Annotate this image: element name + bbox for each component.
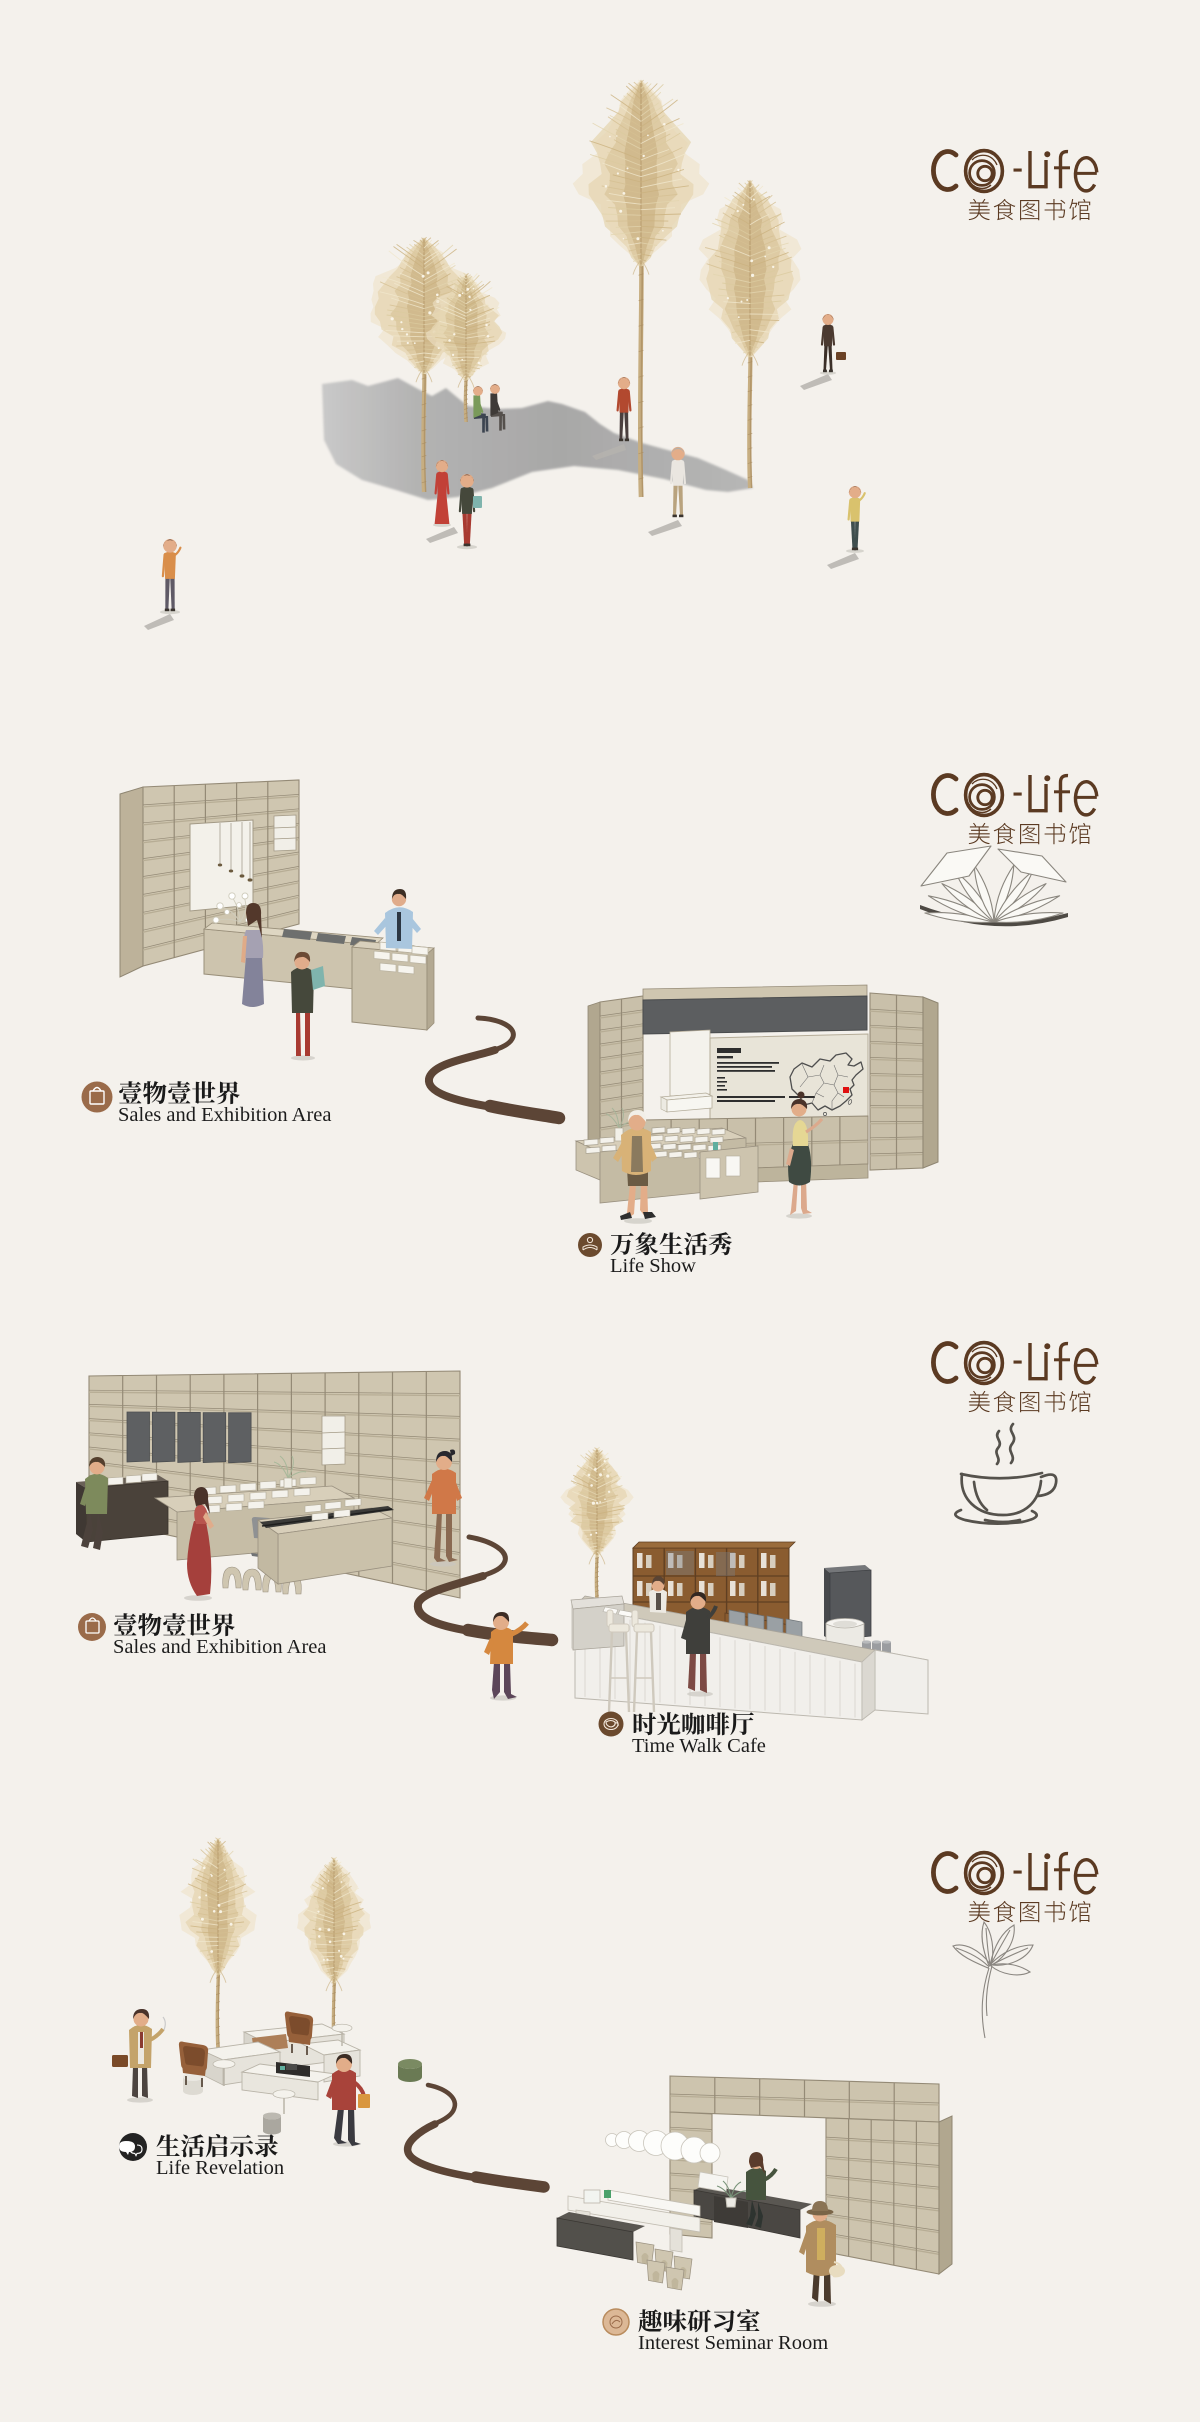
- svg-text:Interest Seminar Room: Interest Seminar Room: [638, 2332, 828, 2354]
- svg-text:Life Show: Life Show: [610, 1255, 696, 1277]
- svg-text:Sales and Exhibition Area: Sales and Exhibition Area: [113, 1636, 327, 1658]
- svg-text:Sales and Exhibition Area: Sales and Exhibition Area: [118, 1104, 332, 1126]
- svg-text:Life Revelation: Life Revelation: [156, 2157, 284, 2179]
- svg-text:Time Walk Cafe: Time Walk Cafe: [632, 1735, 766, 1757]
